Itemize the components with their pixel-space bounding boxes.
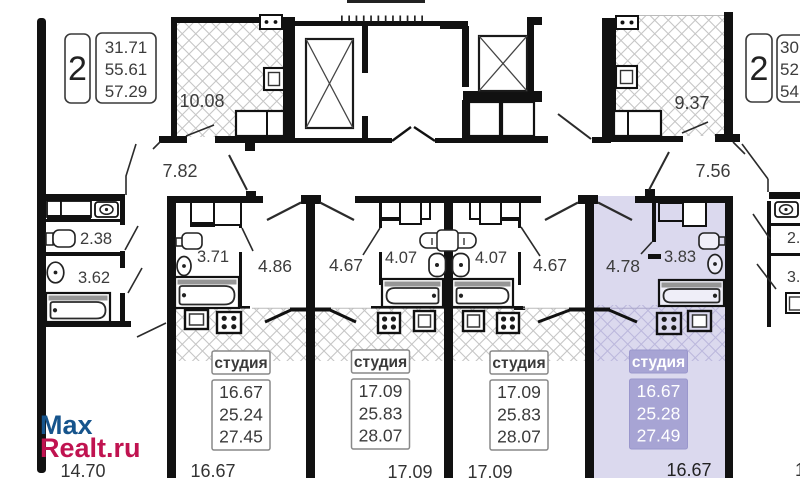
- svg-text:7.82: 7.82: [162, 161, 197, 181]
- svg-text:30.4: 30.4: [780, 38, 800, 57]
- svg-text:57.29: 57.29: [105, 82, 148, 101]
- svg-text:9.37: 9.37: [674, 93, 709, 113]
- svg-text:17.09: 17.09: [387, 462, 432, 482]
- svg-text:54.1: 54.1: [780, 82, 800, 101]
- svg-text:4.07: 4.07: [475, 249, 507, 267]
- svg-text:10.08: 10.08: [179, 91, 224, 111]
- svg-text:4.86: 4.86: [258, 256, 292, 276]
- svg-text:14.70: 14.70: [60, 461, 105, 481]
- svg-text:студия: студия: [632, 354, 685, 371]
- svg-text:2.38: 2.38: [80, 230, 112, 248]
- svg-text:25.24: 25.24: [219, 404, 263, 424]
- svg-text:31.71: 31.71: [105, 38, 148, 57]
- svg-text:52.4: 52.4: [780, 60, 800, 79]
- svg-text:2: 2: [68, 50, 87, 88]
- svg-text:25.28: 25.28: [637, 403, 681, 423]
- svg-text:студия: студия: [354, 354, 407, 371]
- svg-text:2.6: 2.6: [787, 230, 800, 247]
- svg-text:2: 2: [750, 50, 769, 88]
- svg-text:4.07: 4.07: [385, 249, 417, 267]
- svg-text:17.09: 17.09: [359, 381, 403, 401]
- svg-text:17.09: 17.09: [497, 382, 541, 402]
- svg-text:4.67: 4.67: [533, 255, 567, 275]
- svg-text:Realt.ru: Realt.ru: [40, 433, 141, 463]
- svg-text:28.07: 28.07: [497, 427, 541, 447]
- svg-text:4.78: 4.78: [606, 256, 640, 276]
- svg-text:3.1: 3.1: [787, 269, 800, 286]
- svg-text:27.45: 27.45: [219, 427, 263, 447]
- svg-text:17.09: 17.09: [467, 462, 512, 482]
- svg-text:17: 17: [795, 460, 800, 480]
- svg-text:16.67: 16.67: [666, 460, 711, 480]
- svg-text:3.83: 3.83: [664, 248, 696, 266]
- svg-text:4.67: 4.67: [329, 255, 363, 275]
- svg-text:27.49: 27.49: [637, 426, 681, 446]
- svg-text:55.61: 55.61: [105, 60, 148, 79]
- svg-text:16.67: 16.67: [190, 461, 235, 481]
- svg-text:7.56: 7.56: [695, 161, 730, 181]
- svg-text:16.67: 16.67: [219, 382, 263, 402]
- svg-text:28.07: 28.07: [359, 426, 403, 446]
- svg-text:3.71: 3.71: [197, 248, 229, 266]
- svg-text:16.67: 16.67: [637, 381, 681, 401]
- svg-text:3.62: 3.62: [78, 269, 110, 287]
- svg-text:студия: студия: [214, 355, 267, 372]
- svg-text:25.83: 25.83: [497, 404, 541, 424]
- svg-text:25.83: 25.83: [359, 403, 403, 423]
- svg-text:студия: студия: [492, 355, 545, 372]
